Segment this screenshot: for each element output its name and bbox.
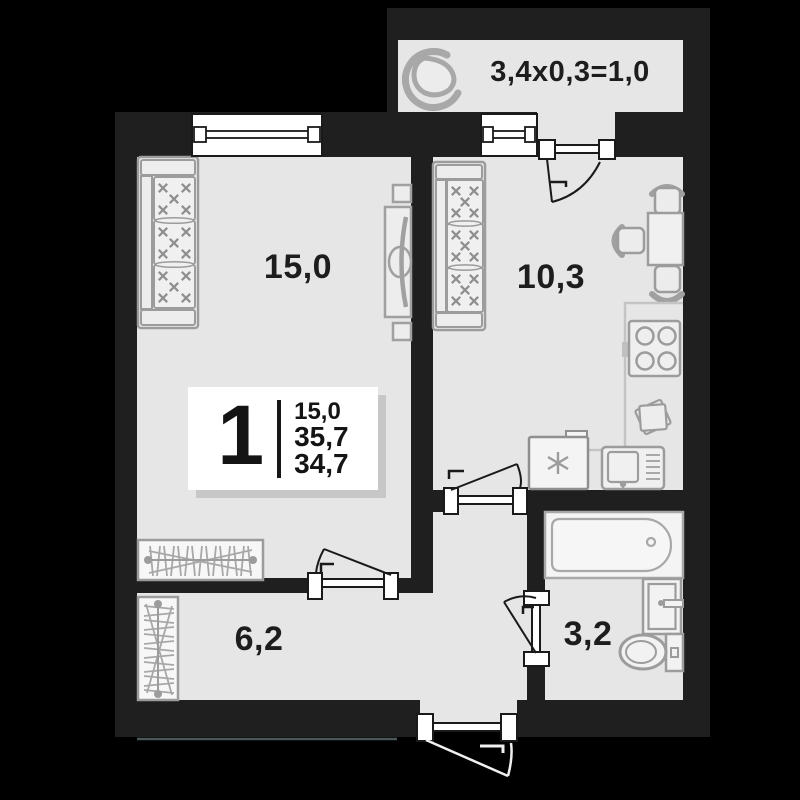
floor-plan: 3,4x0,3=1,0 15,0 10,3 6,2 3,2 1 15,0 35,…	[0, 0, 800, 800]
hallway-extension-floor	[433, 512, 527, 593]
hall-wardrobe-icon	[138, 597, 178, 700]
dining-chair-icon	[618, 228, 644, 253]
reduced-area-value: 34,7	[294, 450, 349, 477]
kitchen-sink-icon	[602, 447, 664, 489]
card-divider	[277, 400, 281, 478]
kitchen-window	[481, 114, 537, 156]
kitchen-area-label: 10,3	[517, 258, 585, 297]
rooms-count: 1	[217, 393, 262, 477]
dining-chair-icon	[655, 266, 680, 292]
hallway-area-label: 6,2	[235, 620, 284, 659]
speaker-icon	[393, 323, 411, 340]
dining-chair-icon	[655, 188, 680, 214]
areas-list: 15,0 35,7 34,7	[294, 400, 349, 477]
living-wardrobe-icon	[138, 540, 263, 580]
speaker-icon	[393, 185, 411, 202]
tv-stand-icon	[385, 185, 411, 340]
stove-icon	[622, 321, 680, 376]
fridge-icon	[529, 431, 588, 489]
bathtub-icon	[545, 512, 683, 578]
kitchen-sofa-icon	[433, 162, 485, 330]
total-area-value: 35,7	[294, 423, 349, 450]
balcony-area-label: 3,4x0,3=1,0	[490, 56, 650, 89]
apartment-summary-card: 1 15,0 35,7 34,7	[188, 387, 378, 490]
entrance-door	[417, 714, 517, 776]
living-sofa-icon	[138, 157, 198, 328]
living-room-window	[192, 114, 322, 156]
toilet-icon	[620, 634, 683, 671]
living-room-area-label: 15,0	[264, 248, 332, 287]
hallway-floor	[137, 593, 527, 700]
washbasin-icon	[643, 579, 683, 634]
floor-plan-drawing	[0, 0, 800, 800]
living-area-value: 15,0	[294, 400, 341, 423]
bathroom-area-label: 3,2	[564, 615, 613, 654]
